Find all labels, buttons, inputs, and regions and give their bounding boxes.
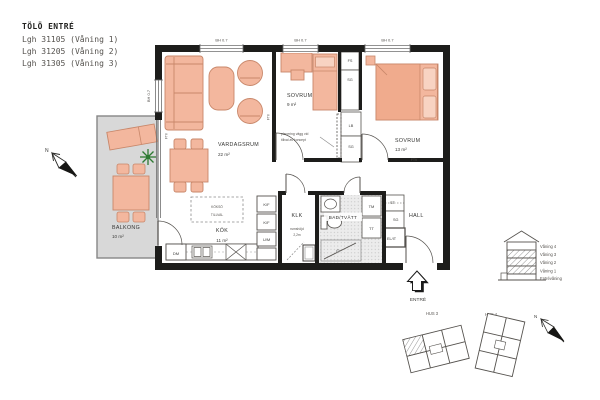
label-dryer: TT — [369, 226, 374, 231]
floor-label: Våning 1 — [540, 269, 557, 274]
apartment-line: Lgh 31305 (Våning 3) — [22, 58, 118, 68]
north-label: N — [45, 148, 49, 154]
floor-label: Våning 4 — [540, 244, 557, 249]
bedroom-13 — [366, 56, 438, 120]
area-label-balkong: 10 m² — [112, 234, 124, 239]
hus3-label: HUS 3 — [426, 311, 439, 316]
note-leader-line — [320, 137, 334, 147]
room-label-hall: HALL — [409, 213, 424, 219]
label-closet-lb: LB — [349, 124, 354, 128]
sink — [192, 246, 212, 258]
kitchen-island-note: TILLVAL — [211, 213, 224, 217]
balcony-table — [113, 176, 149, 210]
label-electrical-cabinet: EL/IT — [387, 237, 397, 241]
window-height-label: BH 0.7 — [294, 38, 307, 43]
hus3-key-plan — [403, 325, 469, 373]
double-bed — [376, 64, 438, 120]
single-bed — [313, 54, 337, 110]
kitchen-island-option-box — [191, 197, 243, 222]
wall-placement-note: tillval av koncept — [281, 138, 306, 142]
window — [365, 44, 410, 53]
apartment-line: Lgh 31105 (Våning 1) — [22, 34, 118, 44]
window-height-label: BH 0.7 — [146, 89, 151, 102]
ceiling-height-note: 2,2m — [293, 233, 301, 237]
coffee-table — [209, 67, 234, 110]
armchair — [238, 99, 263, 124]
desk — [281, 53, 312, 72]
roof — [504, 231, 539, 242]
ftv-label: FTV — [165, 132, 169, 139]
floor-label: Våning 2 — [540, 260, 557, 265]
label-dishwasher: DM — [173, 251, 179, 256]
nightstand — [366, 56, 375, 65]
wall-placement-note: placering vägg vid — [281, 132, 308, 136]
room-label-sovrum-13: SOVRUM — [395, 138, 420, 144]
closet-sg — [341, 136, 361, 162]
balcony: BALKONG 10 m² — [97, 116, 158, 258]
room-label-balkong: BALKONG — [112, 225, 140, 231]
ceiling-height-note: rumshöjd — [290, 227, 304, 231]
optional-wall — [337, 114, 341, 158]
label-fridge-freezer: K/F — [263, 220, 270, 225]
balcony-chair — [133, 164, 145, 174]
north-arrow-icon: N — [534, 314, 564, 342]
door-bedroom-13 — [362, 134, 388, 160]
label-wardrobe-hall: SG — [393, 218, 399, 222]
label-closet-fs: FS — [348, 59, 353, 63]
area-label-sovrum-9: 9 m² — [287, 102, 297, 107]
floor-plan-canvas: TÖLÖ ENTRÉ Lgh 31105 (Våning 1) Lgh 3120… — [0, 0, 600, 400]
room-label-bad-tvatt: BAD/TVÄTT — [329, 214, 357, 220]
floor-label: Entrévåning — [540, 276, 563, 281]
label-washing-machine: TM — [369, 204, 375, 209]
ftv-label: FTV — [267, 113, 271, 120]
kitchen-cabinet — [257, 248, 276, 260]
balcony-chair — [133, 212, 145, 222]
floor-plan-page: TÖLÖ ENTRÉ Lgh 31105 (Våning 1) Lgh 3120… — [0, 0, 600, 400]
balcony-chair — [117, 164, 129, 174]
living-room — [165, 56, 263, 192]
label-closet-sg: SG — [347, 78, 353, 82]
title-block: TÖLÖ ENTRÉ Lgh 31105 (Våning 1) Lgh 3120… — [22, 20, 118, 68]
dining-table — [170, 139, 208, 192]
label-fridge-freezer: K/F — [263, 202, 270, 207]
room-label-vardagsrum: VARDAGSRUM — [218, 142, 259, 148]
door-bathroom — [344, 177, 360, 193]
room-label-sovrum-9: SOVRUM — [287, 93, 312, 99]
building-section-legend: Våning 4 Våning 3 Våning 2 Våning 1 Entr… — [498, 231, 563, 281]
ftv-label: FTV — [411, 158, 418, 162]
floor-label: Våning 3 — [540, 252, 557, 257]
room-label-klk: KLK — [291, 213, 302, 219]
plan-title: TÖLÖ ENTRÉ — [22, 20, 74, 31]
desk-chair — [291, 70, 304, 80]
door-klk — [286, 174, 305, 193]
window-height-label: BH 0.7 — [381, 38, 394, 43]
label-oven-microwave: U/M — [263, 237, 270, 242]
label-cleaning-closet: ST — [390, 201, 396, 205]
area-label-sovrum-13: 13 m² — [395, 147, 407, 152]
kitchen-island-note: KÖKSÖ — [211, 205, 223, 209]
window — [283, 44, 318, 53]
balcony-chair — [117, 212, 129, 222]
area-label-kok: 11 m² — [216, 238, 228, 243]
window — [154, 80, 163, 112]
sofa — [165, 56, 203, 130]
room-label-kok: KÖK — [216, 227, 228, 234]
washbasin — [321, 196, 340, 212]
closet-sg — [341, 70, 359, 110]
klk-closet — [287, 242, 315, 261]
entrance-marker: ENTRÉ — [408, 271, 429, 303]
door-balcony — [158, 221, 182, 245]
area-label-vardagsrum: 22 m² — [218, 152, 230, 157]
stove — [226, 244, 246, 260]
entre-label: ENTRÉ — [410, 296, 426, 303]
north-arrow-icon: N — [45, 148, 77, 177]
apartment-line: Lgh 31205 (Våning 2) — [22, 46, 118, 56]
window-height-label: BH 0.7 — [215, 38, 228, 43]
label-closet-sg: SG — [348, 145, 354, 149]
hus4-key-plan — [475, 313, 525, 376]
armchair — [238, 61, 263, 86]
shaft-inner — [305, 247, 313, 259]
window — [200, 44, 243, 53]
north-label: N — [534, 314, 537, 319]
door-entrance — [406, 236, 433, 263]
